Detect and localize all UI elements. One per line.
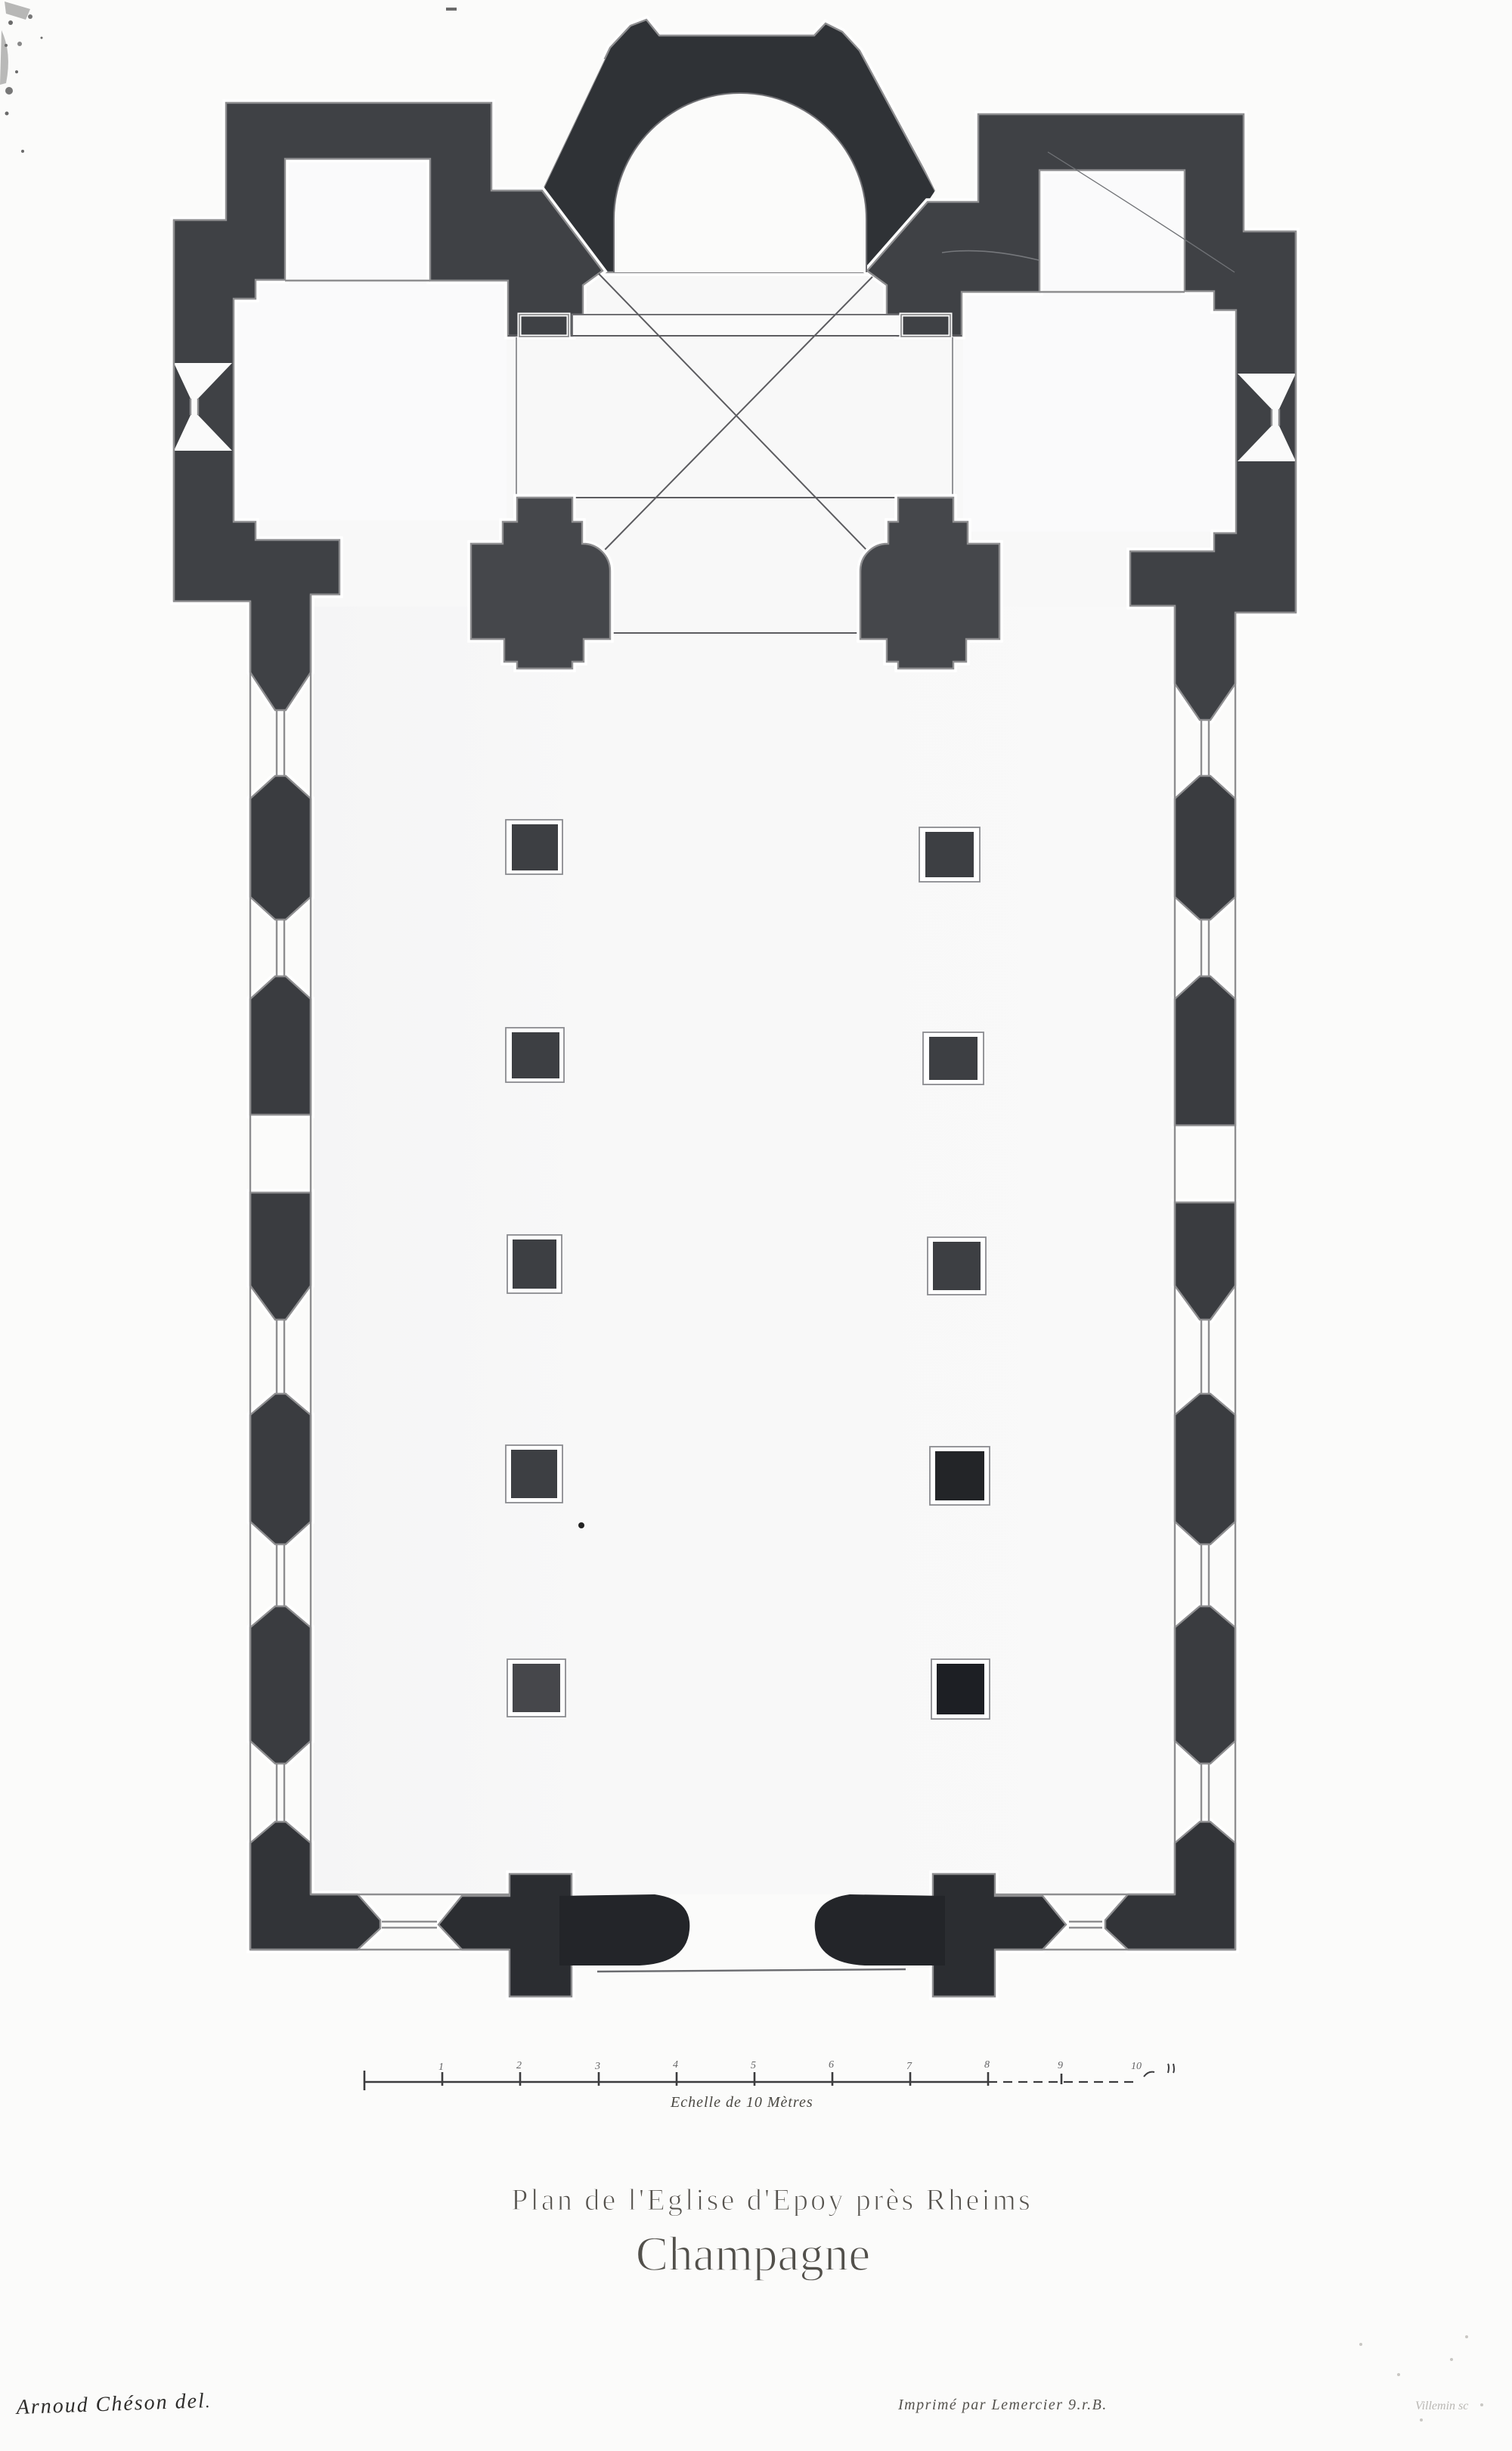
svg-text:3: 3	[594, 2061, 600, 2072]
svg-text:Villemin sc: Villemin sc	[1415, 2400, 1468, 2412]
svg-text:Echelle de 10 Mètres: Echelle de 10 Mètres	[670, 2094, 813, 2111]
svg-text:Plan de l'Eglise d'Epoy près R: Plan de l'Eglise d'Epoy près Rheims	[511, 2183, 1033, 2217]
svg-text:Champagne: Champagne	[636, 2227, 870, 2282]
svg-text:9: 9	[1058, 2060, 1063, 2071]
svg-text:5: 5	[751, 2060, 756, 2071]
svg-text:1: 1	[438, 2062, 444, 2073]
svg-text:4: 4	[673, 2059, 678, 2071]
svg-text:Imprimé par Lemercier 9.r.B.: Imprimé par Lemercier 9.r.B.	[897, 2397, 1108, 2413]
svg-text:7: 7	[906, 2061, 912, 2072]
svg-text:10: 10	[1131, 2061, 1142, 2072]
svg-text:8: 8	[984, 2059, 990, 2071]
svg-text:2: 2	[516, 2060, 522, 2071]
svg-text:6: 6	[829, 2059, 834, 2071]
